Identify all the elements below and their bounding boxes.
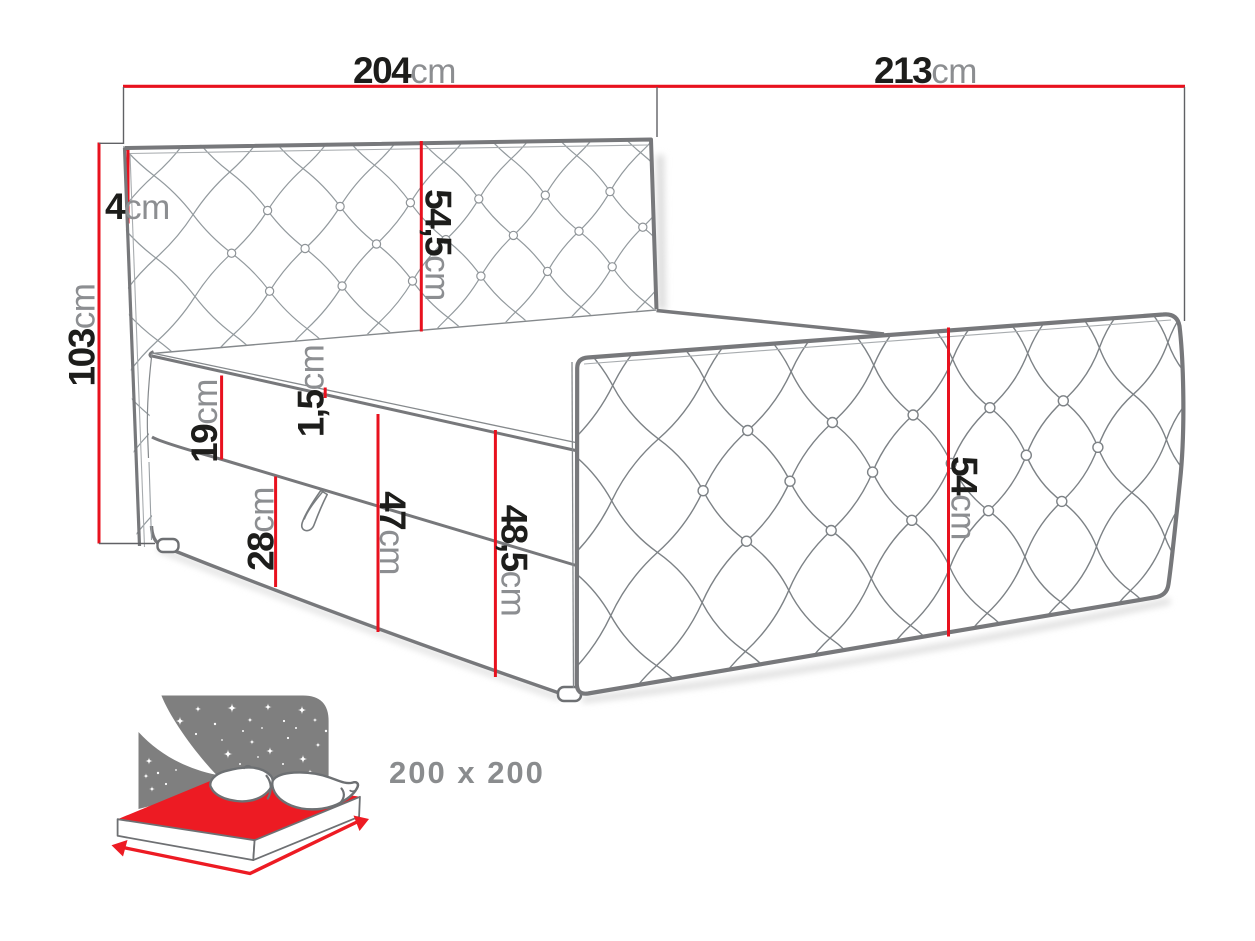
svg-text:47cm: 47cm [372, 491, 413, 575]
svg-text:213cm: 213cm [874, 50, 977, 91]
svg-text:200 x 200: 200 x 200 [389, 755, 545, 790]
svg-text:4cm: 4cm [105, 186, 170, 227]
svg-text:28cm: 28cm [241, 487, 282, 571]
svg-text:54,5cm: 54,5cm [418, 189, 459, 301]
svg-text:204cm: 204cm [353, 50, 456, 91]
svg-text:54cm: 54cm [944, 456, 985, 540]
svg-text:19cm: 19cm [184, 379, 225, 463]
svg-text:1,5cm: 1,5cm [290, 345, 331, 438]
svg-text:48,5cm: 48,5cm [494, 505, 535, 617]
svg-text:103cm: 103cm [62, 284, 103, 387]
